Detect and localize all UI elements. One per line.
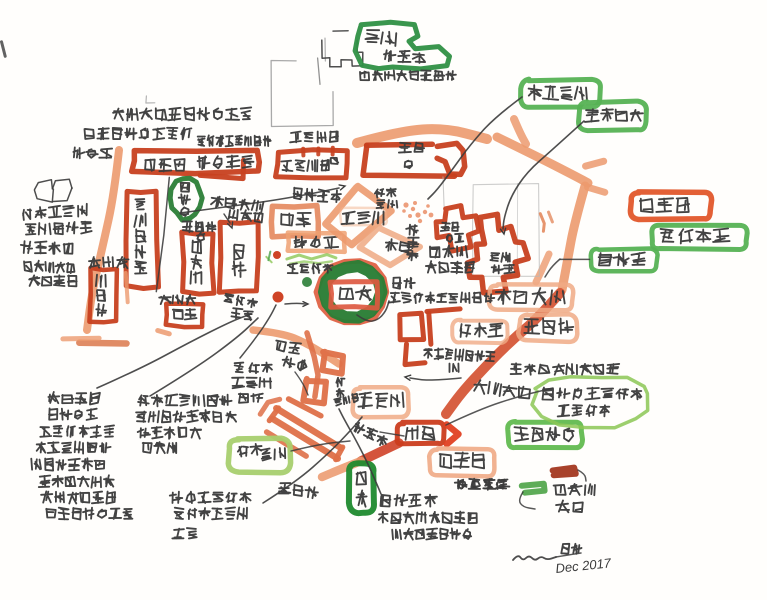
svg-text:Dec 2017: Dec 2017 <box>555 555 613 576</box>
